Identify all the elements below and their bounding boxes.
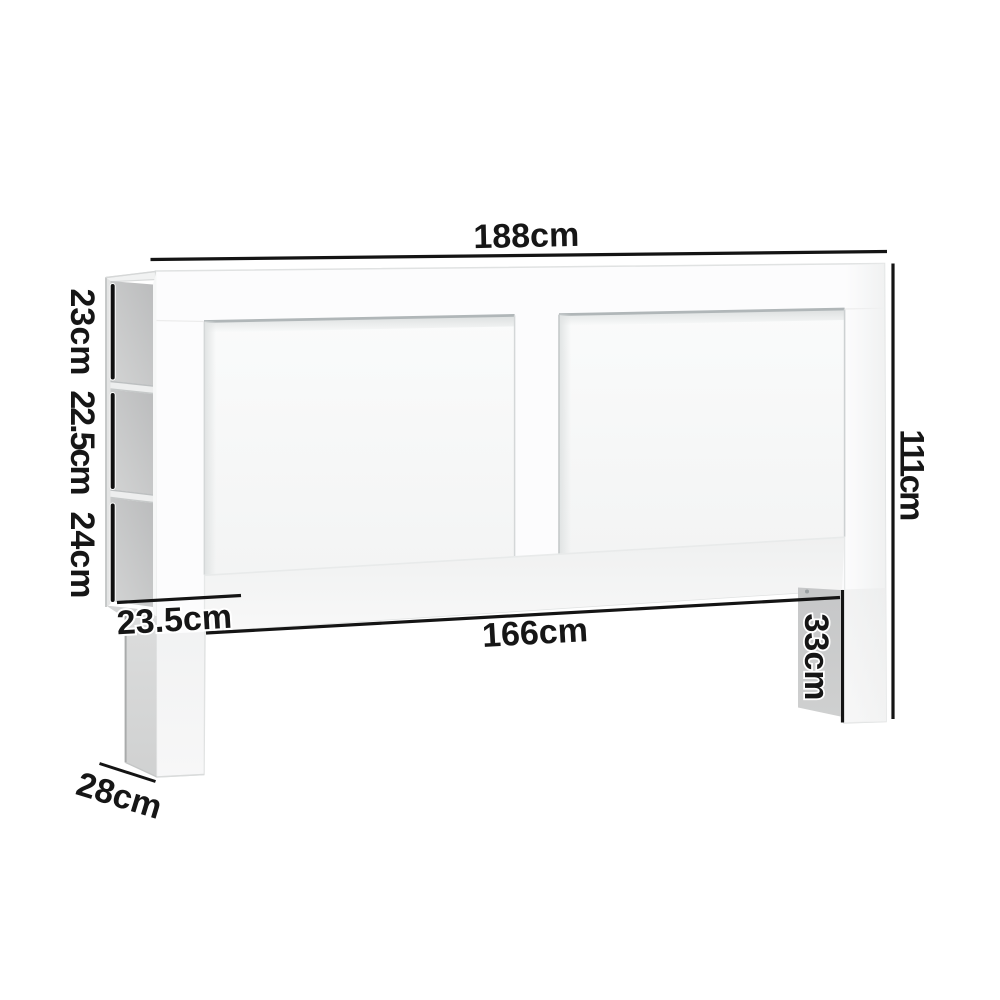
svg-text:24cm: 24cm [63,512,101,599]
svg-text:22.5cm: 22.5cm [63,390,101,494]
svg-text:111cm: 111cm [893,429,931,520]
svg-text:33cm: 33cm [797,614,835,701]
svg-text:23.5cm: 23.5cm [116,598,233,643]
svg-text:188cm: 188cm [473,216,580,256]
svg-text:23cm: 23cm [63,289,101,376]
svg-text:166cm: 166cm [481,611,589,655]
